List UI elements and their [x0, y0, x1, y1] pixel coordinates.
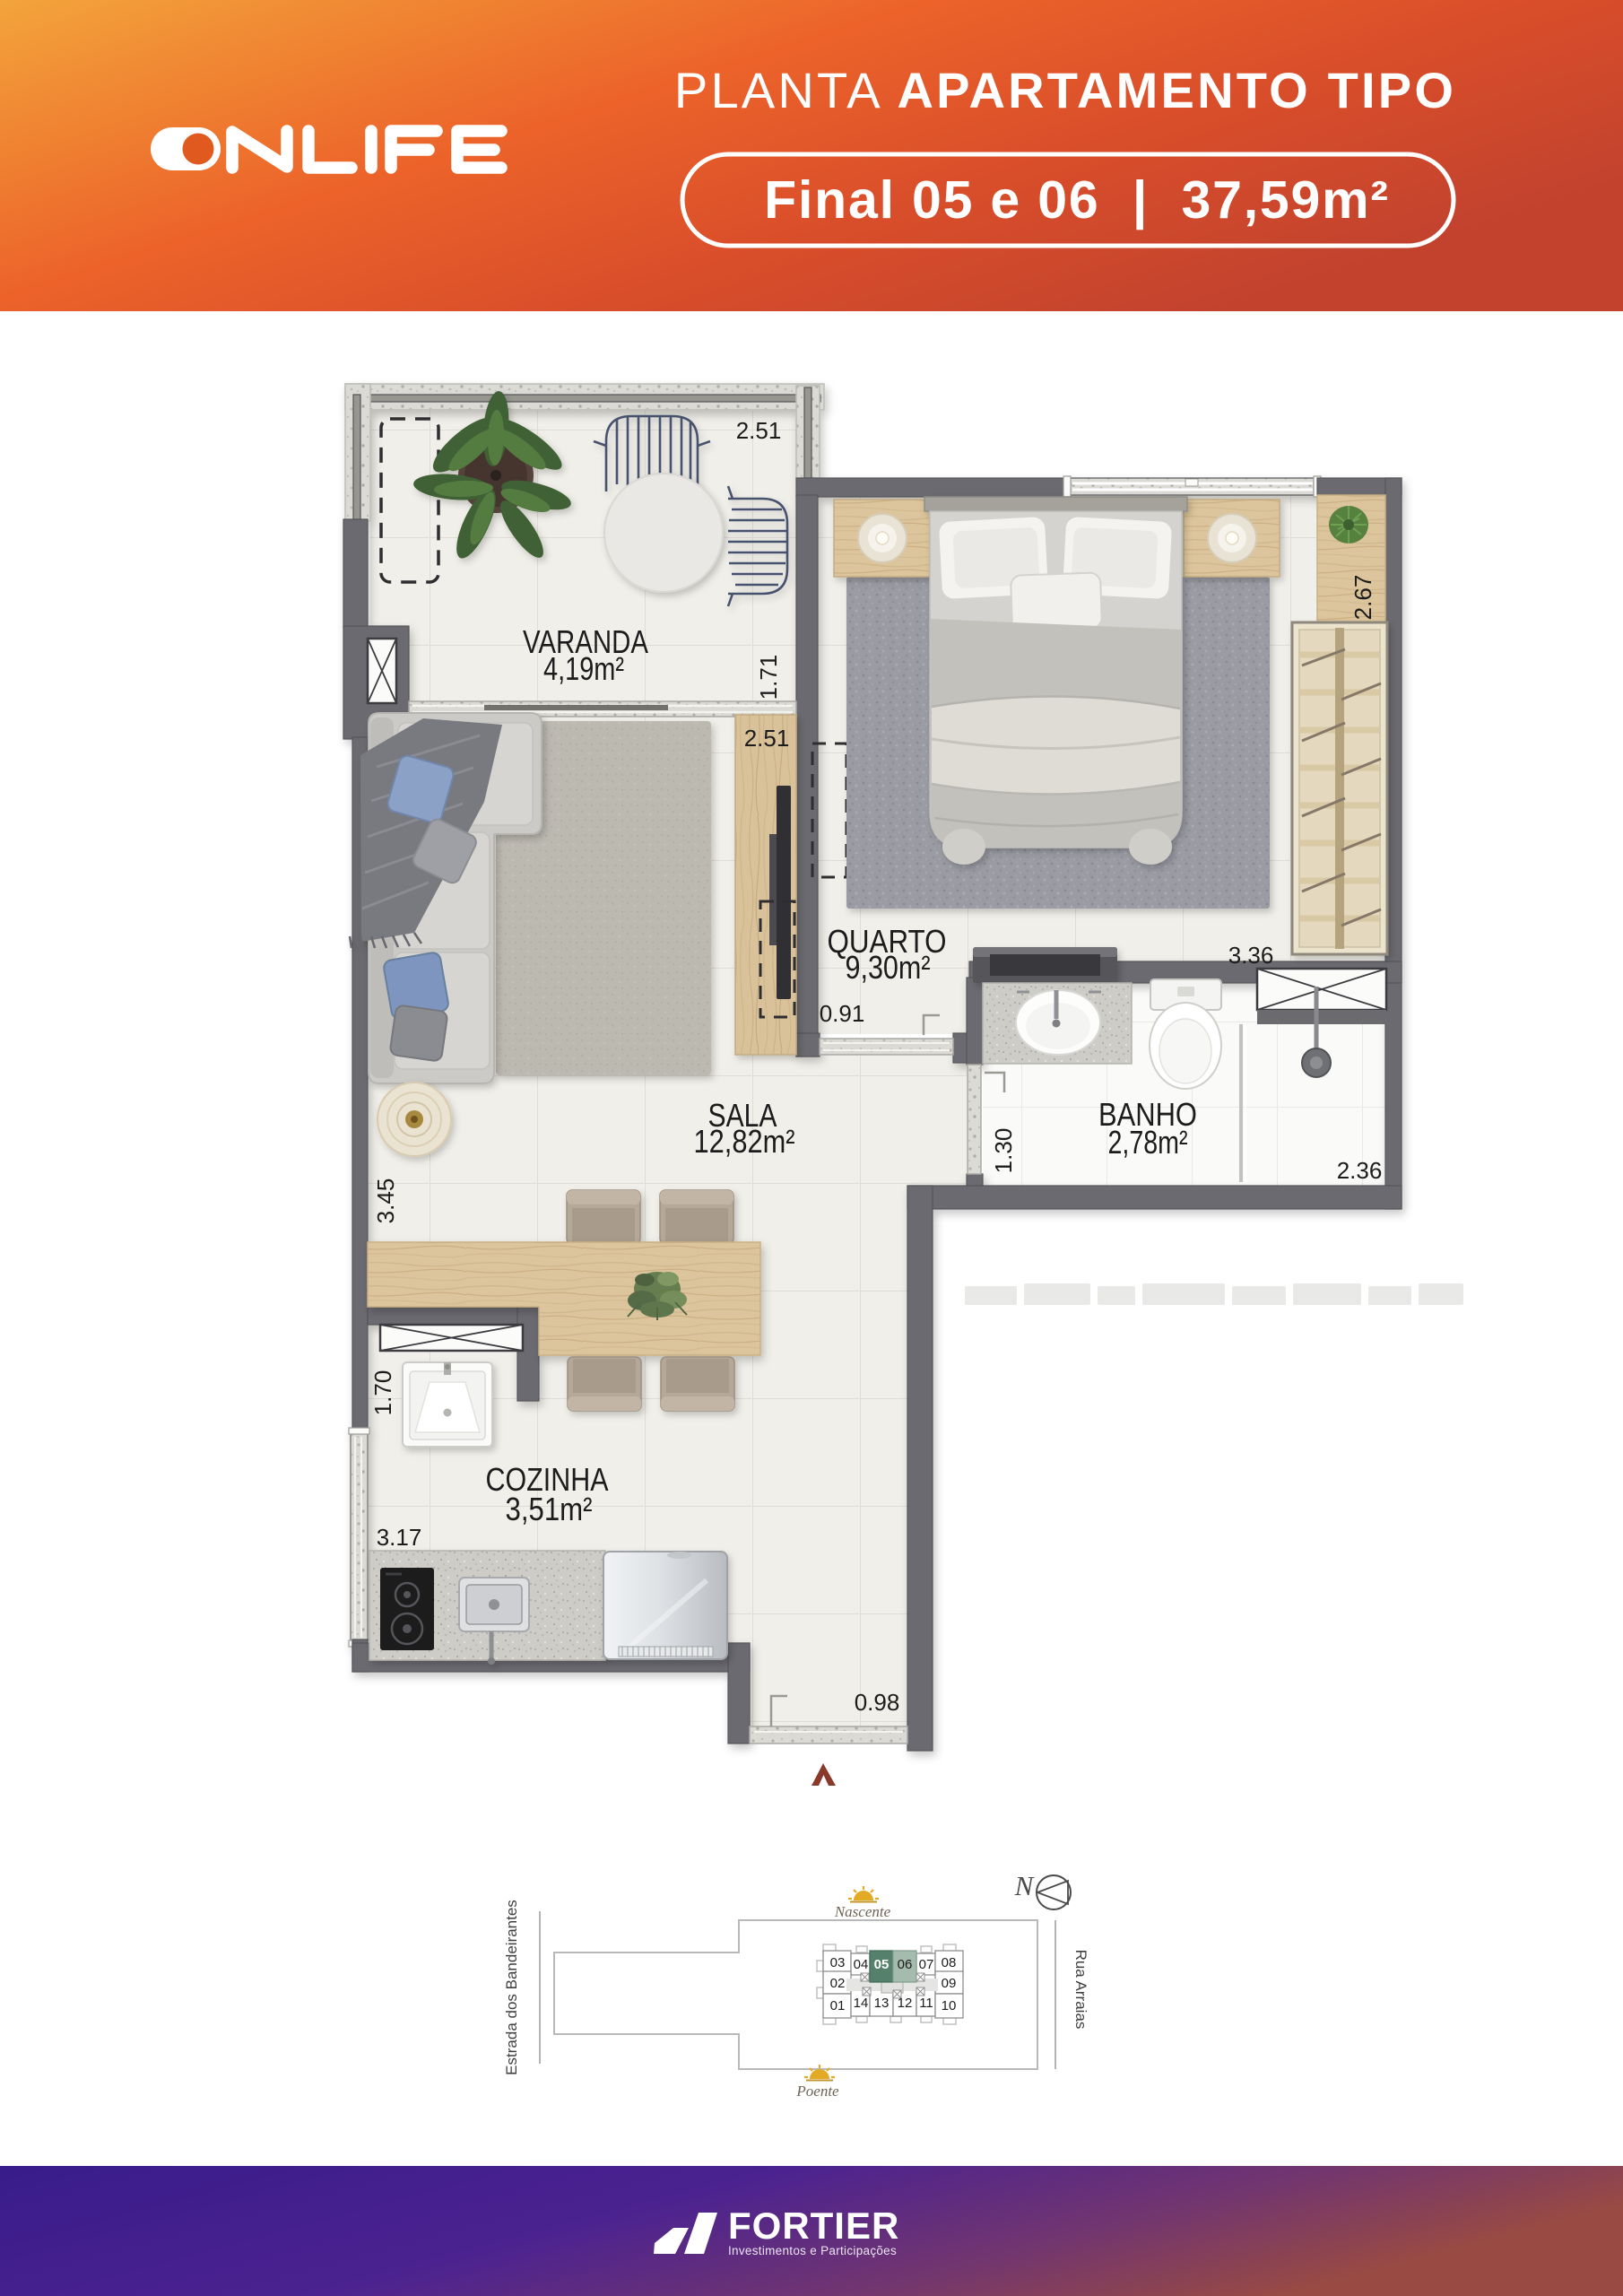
svg-text:Estrada dos Bandeirantes: Estrada dos Bandeirantes — [503, 1900, 520, 2075]
svg-text:02: 02 — [830, 1976, 846, 1991]
svg-text:0.98: 0.98 — [855, 1689, 900, 1716]
svg-text:FORTIER: FORTIER — [728, 2205, 899, 2247]
svg-text:07: 07 — [919, 1957, 934, 1972]
svg-text:04: 04 — [854, 1957, 869, 1972]
svg-text:2.36: 2.36 — [1337, 1157, 1383, 1184]
svg-text:3,51m²: 3,51m² — [506, 1491, 593, 1527]
svg-text:2,78m²: 2,78m² — [1108, 1124, 1188, 1161]
svg-text:3.36: 3.36 — [1228, 942, 1274, 969]
svg-text:1.71: 1.71 — [755, 655, 782, 700]
svg-text:2.51: 2.51 — [744, 725, 790, 752]
svg-text:1.70: 1.70 — [369, 1370, 396, 1416]
svg-text:10: 10 — [942, 1998, 957, 2013]
svg-text:Rua Arraias: Rua Arraias — [1072, 1950, 1089, 2030]
svg-text:13: 13 — [874, 1996, 890, 2011]
svg-text:N: N — [1014, 1870, 1036, 1901]
svg-text:0.91: 0.91 — [820, 1000, 865, 1027]
svg-text:12: 12 — [898, 1996, 913, 2011]
svg-text:11: 11 — [919, 1996, 933, 2011]
svg-text:3.45: 3.45 — [372, 1178, 399, 1224]
svg-text:09: 09 — [942, 1976, 957, 1991]
svg-text:Investimentos e Participações: Investimentos e Participações — [728, 2244, 897, 2257]
svg-text:Final 05 e 06 | 37,59m²: Final 05 e 06 | 37,59m² — [764, 170, 1390, 230]
svg-text:4,19m²: 4,19m² — [543, 650, 624, 687]
svg-text:9,30m²: 9,30m² — [846, 949, 931, 986]
svg-text:1.30: 1.30 — [990, 1128, 1017, 1174]
svg-text:Poente: Poente — [795, 2083, 839, 2100]
svg-text:3.17: 3.17 — [377, 1524, 422, 1551]
svg-text:08: 08 — [942, 1955, 957, 1970]
svg-text:2.51: 2.51 — [736, 417, 782, 444]
svg-text:2.67: 2.67 — [1350, 575, 1376, 621]
svg-text:12,82m²: 12,82m² — [694, 1123, 795, 1160]
svg-text:14: 14 — [854, 1996, 869, 2011]
svg-text:06: 06 — [898, 1957, 913, 1972]
svg-text:Nascente: Nascente — [834, 1903, 891, 1920]
svg-text:01: 01 — [830, 1998, 846, 2013]
svg-text:PLANTA APARTAMENTO TIPO: PLANTA APARTAMENTO TIPO — [674, 62, 1456, 118]
svg-text:05: 05 — [874, 1957, 890, 1972]
svg-text:03: 03 — [830, 1955, 846, 1970]
